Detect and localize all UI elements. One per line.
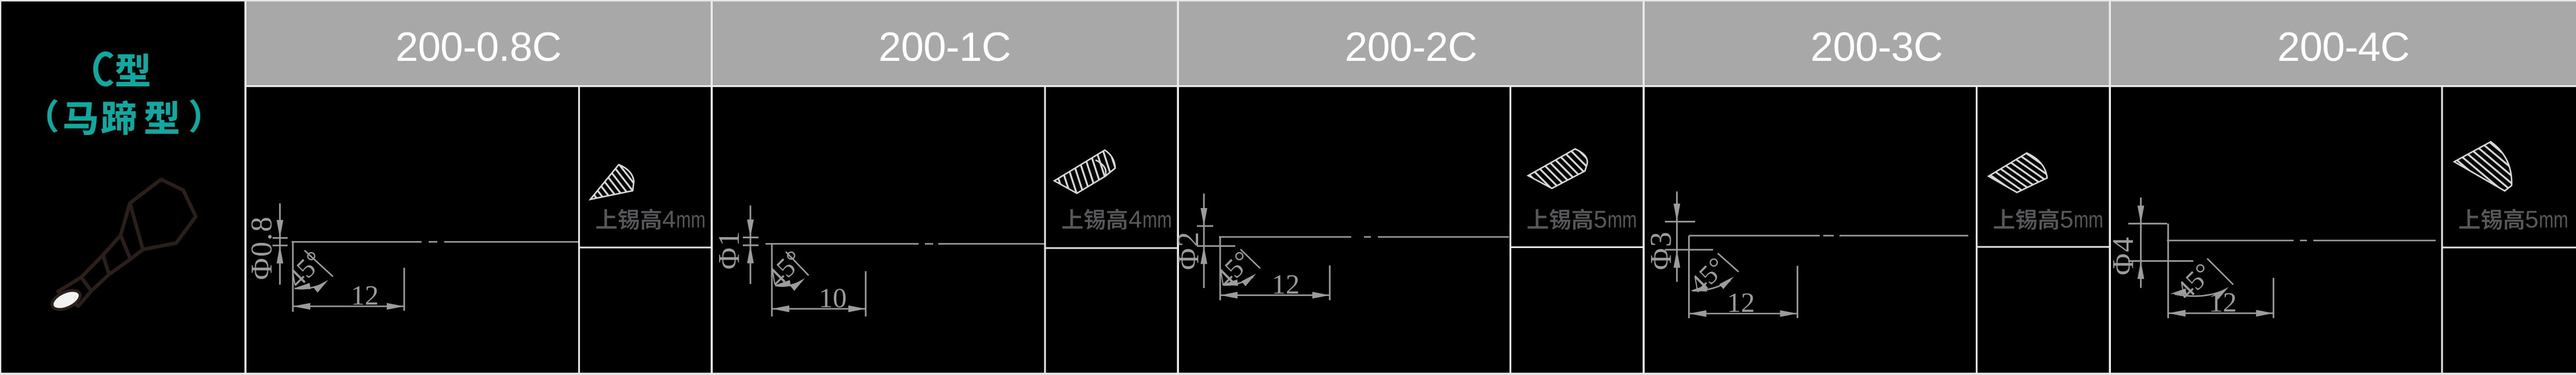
svg-text:200-1C: 200-1C — [879, 24, 1011, 70]
svg-text:4: 4 — [662, 206, 676, 233]
svg-text:Φ1: Φ1 — [713, 230, 746, 270]
svg-text:4: 4 — [1129, 206, 1142, 233]
svg-text:Φ4: Φ4 — [2107, 236, 2140, 275]
svg-text:12: 12 — [2209, 287, 2237, 318]
svg-text:Φ0.8: Φ0.8 — [245, 216, 278, 280]
svg-text:mm: mm — [2539, 206, 2568, 232]
svg-text:Φ3: Φ3 — [1645, 231, 1678, 270]
svg-text:mm: mm — [1142, 206, 1172, 232]
svg-text:200-3C: 200-3C — [1811, 24, 1943, 70]
svg-text:5: 5 — [1594, 206, 1607, 233]
svg-text:10: 10 — [819, 283, 847, 314]
svg-text:5: 5 — [2525, 206, 2538, 233]
svg-text:200-2C: 200-2C — [1345, 24, 1477, 70]
svg-text:200-0.8C: 200-0.8C — [396, 24, 561, 70]
svg-text:200-4C: 200-4C — [2277, 24, 2410, 70]
svg-text:5: 5 — [2060, 206, 2073, 233]
svg-text:mm: mm — [676, 206, 706, 232]
svg-text:12: 12 — [1727, 287, 1755, 318]
svg-text:Φ2: Φ2 — [1172, 231, 1205, 270]
svg-text:mm: mm — [1608, 206, 1637, 232]
svg-text:12: 12 — [1272, 269, 1300, 300]
svg-text:mm: mm — [2074, 206, 2103, 232]
svg-text:12: 12 — [351, 281, 379, 311]
